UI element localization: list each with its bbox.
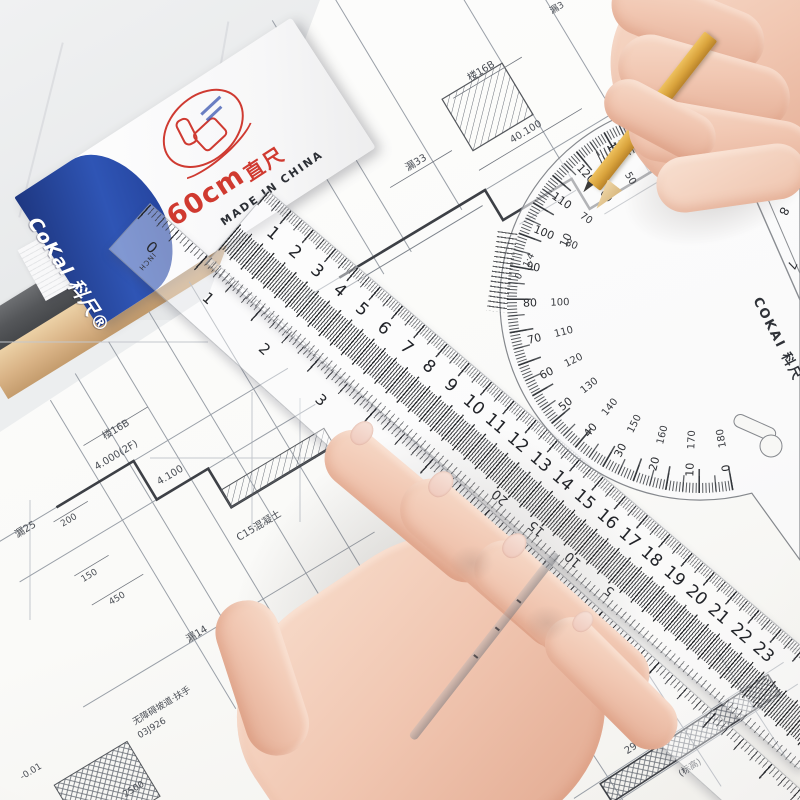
lead-stick-mark xyxy=(473,654,478,659)
lead-stick-mark xyxy=(495,627,500,632)
lead-stick-mark xyxy=(516,599,521,604)
hand-resting xyxy=(0,0,800,800)
photo-scene: 楼16B 40.100 漏33 漏3 楼16B xyxy=(0,0,800,800)
knuckle-shading xyxy=(525,605,569,641)
knuckle-shading xyxy=(450,545,494,581)
